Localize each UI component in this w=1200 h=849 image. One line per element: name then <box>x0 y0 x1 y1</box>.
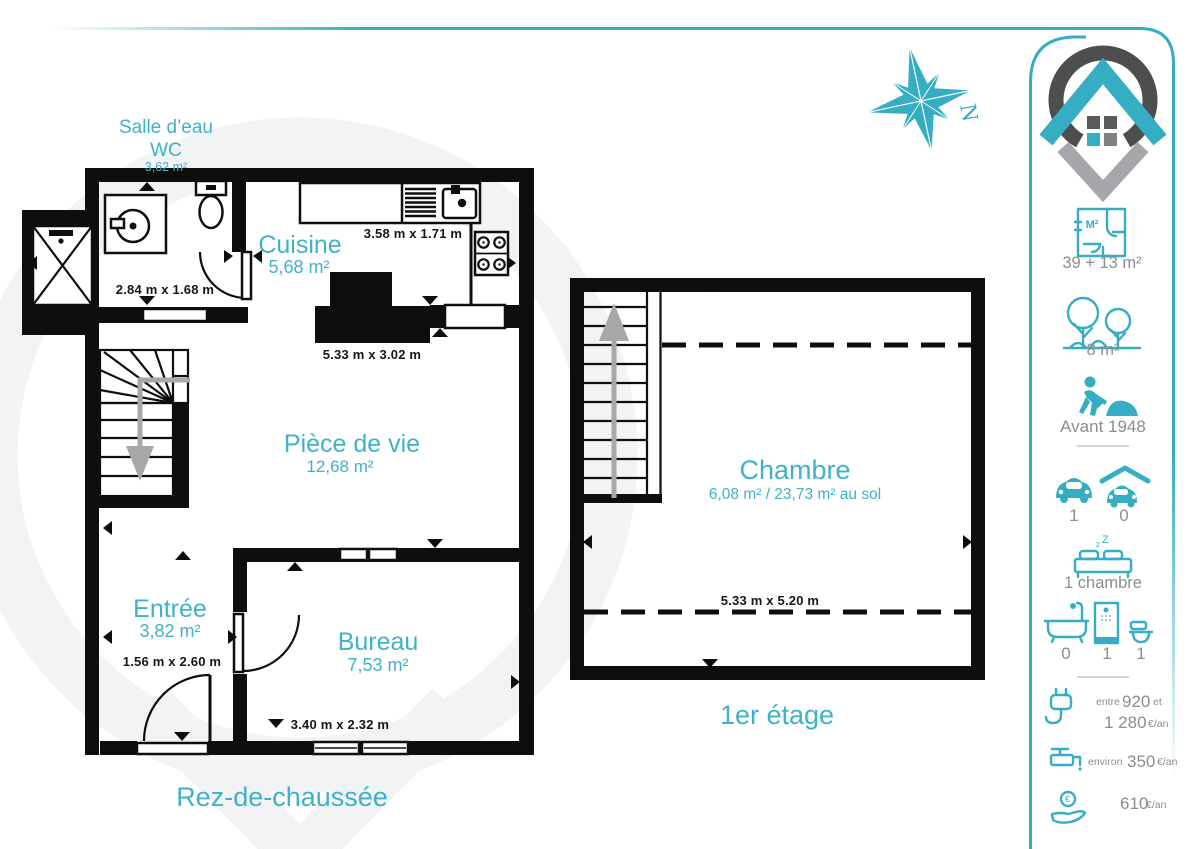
bed-zz-small: z <box>1096 540 1100 549</box>
brand-logo <box>1046 53 1160 191</box>
bedrooms-row: z Z 1 chambre <box>1064 534 1142 592</box>
compass-rose-icon: N <box>856 37 983 163</box>
tax-value: 610 <box>1120 794 1148 813</box>
surface-value: 39 + 13 m² <box>1062 254 1142 272</box>
bedrooms-value: 1 chambre <box>1064 574 1142 592</box>
room-area-entree: 3,82 m² <box>139 621 200 641</box>
bathtub-count: 0 <box>1061 644 1070 663</box>
first-floor-title: 1er étage <box>720 700 834 730</box>
water-unit: €/an <box>1157 756 1178 768</box>
bed-zz-large: Z <box>1102 534 1109 546</box>
water-prefix: environ <box>1088 756 1123 768</box>
construction-value: Avant 1948 <box>1060 417 1146 436</box>
bathrooms-row: 0 1 1 <box>1045 603 1152 663</box>
dim-salle-deau: 2.84 m x 1.68 m <box>116 282 214 297</box>
shower-count: 1 <box>1102 644 1111 663</box>
room-area-salle-deau: 3,62 m² <box>145 160 187 174</box>
room-label-entree: Entrée <box>133 595 207 623</box>
room-label-cuisine: Cuisine <box>258 231 341 259</box>
dim-chambre: 5.33 m x 5.20 m <box>721 593 819 608</box>
construction-row: Avant 1948 <box>1060 377 1146 437</box>
room-label-chambre: Chambre <box>739 455 850 485</box>
dim-entree: 1.56 m x 2.60 m <box>123 654 221 669</box>
compass-north-label: N <box>954 102 983 124</box>
shower-box <box>33 226 92 305</box>
m2-icon-label: M² <box>1086 219 1099 231</box>
room-area-cuisine: 5,68 m² <box>268 257 329 277</box>
energy-cost-row: entre 920 et 1 280 €/an <box>1046 689 1169 732</box>
parking-row: 1 0 <box>1056 468 1148 525</box>
floor-plan-graphic: Salle d’eau WC 3,62 m² 2.84 m x 1.68 m C… <box>0 0 1200 849</box>
dim-cuisine-bottom: 5.33 m x 3.02 m <box>323 347 421 362</box>
tax-unit: €/an <box>1146 799 1167 811</box>
surface-row: M² 39 + 13 m² <box>1062 209 1142 272</box>
carport-icon <box>1102 468 1148 508</box>
room-label-salle-deau: Salle d’eau <box>119 117 213 138</box>
dim-bureau: 3.40 m x 2.32 m <box>291 717 389 732</box>
parking-outdoor-count: 1 <box>1069 506 1078 525</box>
floor-plan-page: Salle d’eau WC 3,62 m² 2.84 m x 1.68 m C… <box>0 0 1200 849</box>
car-icon <box>1056 478 1092 503</box>
energy-conj: et <box>1153 696 1162 708</box>
room-label-wc: WC <box>150 140 182 161</box>
garden-row: 8 m² <box>1064 298 1140 359</box>
toilet-icon <box>196 181 226 228</box>
euro-coin-symbol: € <box>1065 794 1070 804</box>
gardener-icon <box>1079 377 1138 417</box>
stove-icon <box>475 232 508 275</box>
room-label-piece-de-vie: Pièce de vie <box>284 430 420 458</box>
first-floor-labels: Chambre 6,08 m² / 23,73 m² au sol 5.33 m… <box>709 455 881 730</box>
room-label-bureau: Bureau <box>338 628 419 656</box>
dim-cuisine-top: 3.58 m x 1.71 m <box>364 226 462 241</box>
washing-machine-icon <box>105 195 166 253</box>
room-area-chambre: 6,08 m² / 23,73 m² au sol <box>709 486 881 503</box>
faucet-icon <box>1051 749 1082 771</box>
toilet-sidebar-icon <box>1130 622 1152 642</box>
water-value: 350 <box>1127 752 1155 771</box>
shower-icon <box>1095 603 1118 644</box>
energy-prefix: entre <box>1096 696 1120 708</box>
tax-cost-row: € 610 €/an <box>1052 792 1167 823</box>
energy-value-low: 920 <box>1122 692 1150 711</box>
kitchen-counter <box>300 183 480 223</box>
floor-plan-m2-icon <box>1075 209 1125 256</box>
room-area-bureau: 7,53 m² <box>347 655 408 675</box>
parking-covered-count: 0 <box>1119 506 1128 525</box>
ground-floor-windows <box>137 305 505 754</box>
energy-unit: €/an <box>1148 718 1169 730</box>
bathtub-icon <box>1045 603 1088 642</box>
ground-floor-title: Rez-de-chaussée <box>176 782 388 812</box>
logo-windows <box>1087 116 1117 146</box>
energy-value-high: 1 280 <box>1104 713 1147 732</box>
property-stats-sidebar: M² 39 + 13 m² 8 m² Avant <box>1045 209 1178 823</box>
water-cost-row: environ 350 €/an <box>1051 749 1178 771</box>
electric-plug-icon <box>1046 689 1071 723</box>
garden-value: 8 m² <box>1087 341 1121 359</box>
room-area-piece-de-vie: 12,68 m² <box>306 457 373 476</box>
toilet-count: 1 <box>1136 644 1145 663</box>
logo-pin-tail <box>1063 147 1143 191</box>
